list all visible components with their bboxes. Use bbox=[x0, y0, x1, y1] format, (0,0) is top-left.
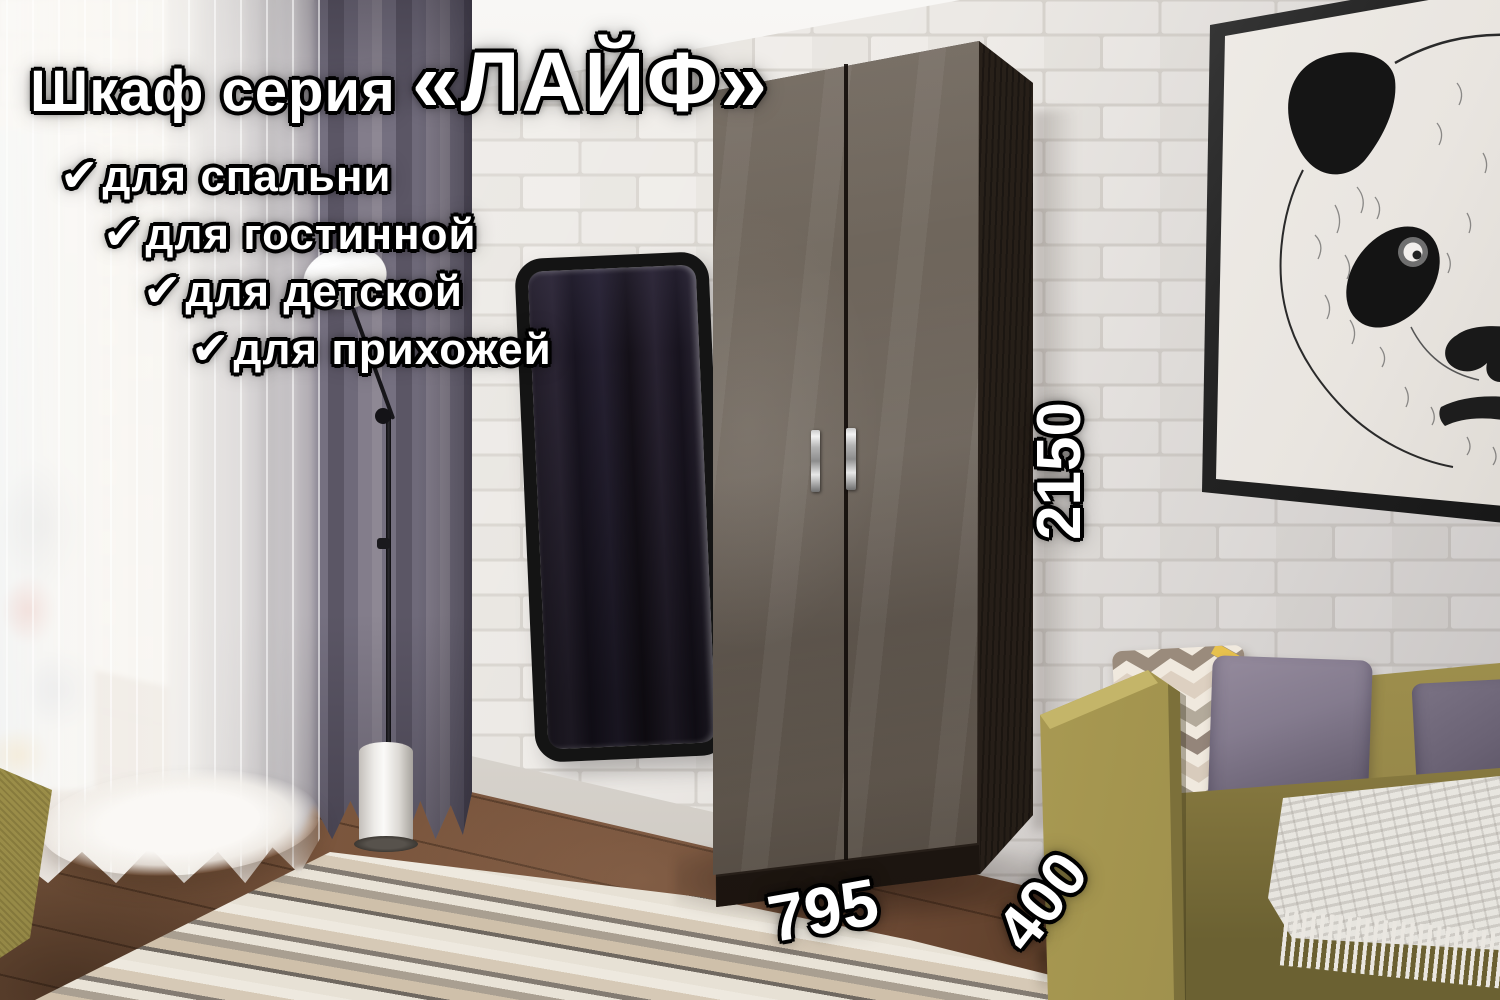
feature-bedroom: ✔ для спальни bbox=[60, 152, 391, 199]
title-prefix: Шкаф серия bbox=[30, 63, 396, 121]
dimension-height-label: 2150 bbox=[1028, 386, 1092, 556]
check-icon: ✔ bbox=[103, 210, 142, 256]
mirror-glass bbox=[528, 265, 717, 750]
feature-label: для прихожей bbox=[234, 328, 552, 372]
feature-label: для гостинной bbox=[146, 213, 477, 257]
feature-label: для спальни bbox=[103, 155, 392, 199]
feature-hallway: ✔ для прихожей bbox=[191, 325, 552, 372]
sheer-curtain bbox=[0, 0, 320, 892]
feature-livingroom: ✔ для гостинной bbox=[103, 210, 477, 257]
panda-picture bbox=[1195, 0, 1500, 580]
title-series: «ЛАЙФ» bbox=[412, 40, 769, 124]
door-handle-right bbox=[846, 428, 856, 490]
page-title: Шкаф серия «ЛАЙФ» bbox=[30, 40, 769, 124]
check-icon: ✔ bbox=[191, 325, 230, 371]
check-icon: ✔ bbox=[143, 267, 182, 313]
lamp-joint bbox=[375, 408, 391, 424]
lamp-pole bbox=[386, 414, 391, 748]
feature-kidsroom: ✔ для детской bbox=[143, 267, 463, 314]
lamp-base bbox=[359, 742, 413, 844]
lamp-clamp bbox=[377, 538, 390, 549]
product-scene: Шкаф серия «ЛАЙФ» ✔ для спальни ✔ для го… bbox=[0, 0, 1500, 1000]
door-handle-left bbox=[811, 430, 820, 492]
feature-label: для детской bbox=[186, 270, 463, 314]
lamp-base-ring bbox=[354, 836, 418, 852]
check-icon: ✔ bbox=[60, 152, 99, 198]
